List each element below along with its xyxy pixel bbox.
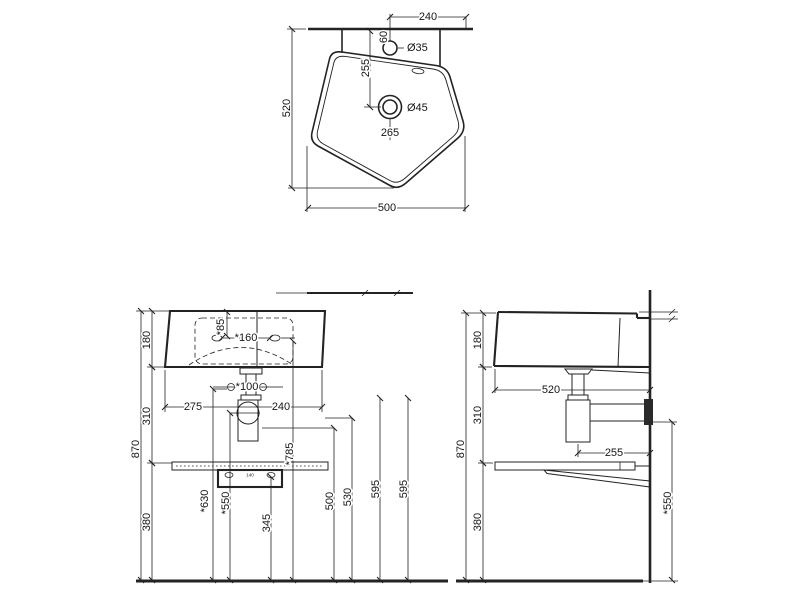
dim-top-500: 500 — [378, 202, 396, 214]
technical-drawing-page: 240 Ø35 60 255 520 Ø45 265 500 — [0, 0, 800, 600]
wall-flange — [644, 399, 653, 425]
dim-top-hole-35: Ø35 — [407, 42, 428, 54]
dim-front-100: *100 — [236, 381, 259, 393]
tap-hole-right — [270, 335, 280, 341]
dim-front-160: *160 — [235, 332, 258, 344]
tailpipe-side — [572, 374, 584, 395]
side-view: 180 520 310 870 255 380 *550 — [455, 290, 678, 583]
dim-front-530: 530 — [342, 488, 354, 506]
dim-side-180: 180 — [472, 331, 484, 349]
trap-collar-side — [568, 395, 588, 400]
dim-front-345: 345 — [261, 514, 273, 532]
dim-front-380: 380 — [141, 513, 153, 531]
dim-front-500: 500 — [324, 492, 336, 510]
dim-side-310: 310 — [472, 406, 484, 424]
dim-side-520: 520 — [542, 384, 560, 396]
basin-side-rear-edge — [618, 318, 620, 367]
dim-side-380: 380 — [472, 513, 484, 531]
trap-body-side — [566, 400, 590, 442]
dim-top-520: 520 — [281, 99, 293, 117]
shelf-side — [495, 462, 635, 470]
bracket-hole-left — [225, 473, 233, 478]
basin-outline-inner — [317, 56, 459, 182]
drain-hole-inner — [383, 100, 397, 114]
drain-flange-front — [240, 368, 262, 374]
dim-front-85: *85 — [215, 319, 227, 336]
dim-top-265: 265 — [381, 127, 399, 139]
trap-body-front — [238, 400, 258, 441]
dim-front-275: 275 — [184, 401, 202, 413]
dim-top-hole-45: Ø45 — [407, 102, 428, 114]
dim-front-550: *550 — [220, 492, 232, 515]
bowl-hidden-arc — [189, 348, 293, 366]
dim-front-595-b: 595 — [398, 480, 410, 498]
bracket-hole-right — [267, 473, 275, 478]
dim-side-870: 870 — [455, 440, 467, 458]
dim-front-630: *630 — [199, 490, 211, 513]
top-view: 240 Ø35 60 255 520 Ø45 265 500 — [281, 11, 473, 214]
dim-front-785: *785 — [284, 443, 296, 466]
dim-front-310: 310 — [141, 407, 153, 425]
basin-side-top — [498, 312, 637, 314]
dim-top-255: 255 — [360, 59, 372, 77]
drain-hole-outer — [379, 96, 402, 119]
waste-pipe-side — [590, 404, 646, 421]
dim-top-60: 60 — [378, 31, 390, 43]
front-view: 180 *85 *160 *100 275 240 310 870 *785 1… — [130, 290, 448, 581]
dim-bracket-140: 140 — [246, 473, 254, 478]
sink-dimension-drawing: 240 Ø35 60 255 520 Ø45 265 500 — [0, 0, 800, 600]
basin-side-front-edge — [494, 312, 498, 366]
basin-side-bottom — [494, 366, 650, 367]
dim-front-870: 870 — [130, 440, 142, 458]
shelf-support-bracket — [544, 470, 650, 487]
basin-side-underside — [592, 370, 650, 373]
trap-collar-front — [241, 395, 261, 400]
drain-flange-side — [565, 369, 592, 374]
dim-front-595-a: 595 — [370, 480, 382, 498]
dim-front-240: 240 — [272, 401, 290, 413]
dim-side-550: *550 — [662, 492, 674, 515]
overflow-slot — [412, 68, 425, 75]
dim-top-240: 240 — [419, 11, 437, 23]
dim-side-255: 255 — [605, 447, 623, 459]
dim-front-180: 180 — [141, 331, 153, 349]
